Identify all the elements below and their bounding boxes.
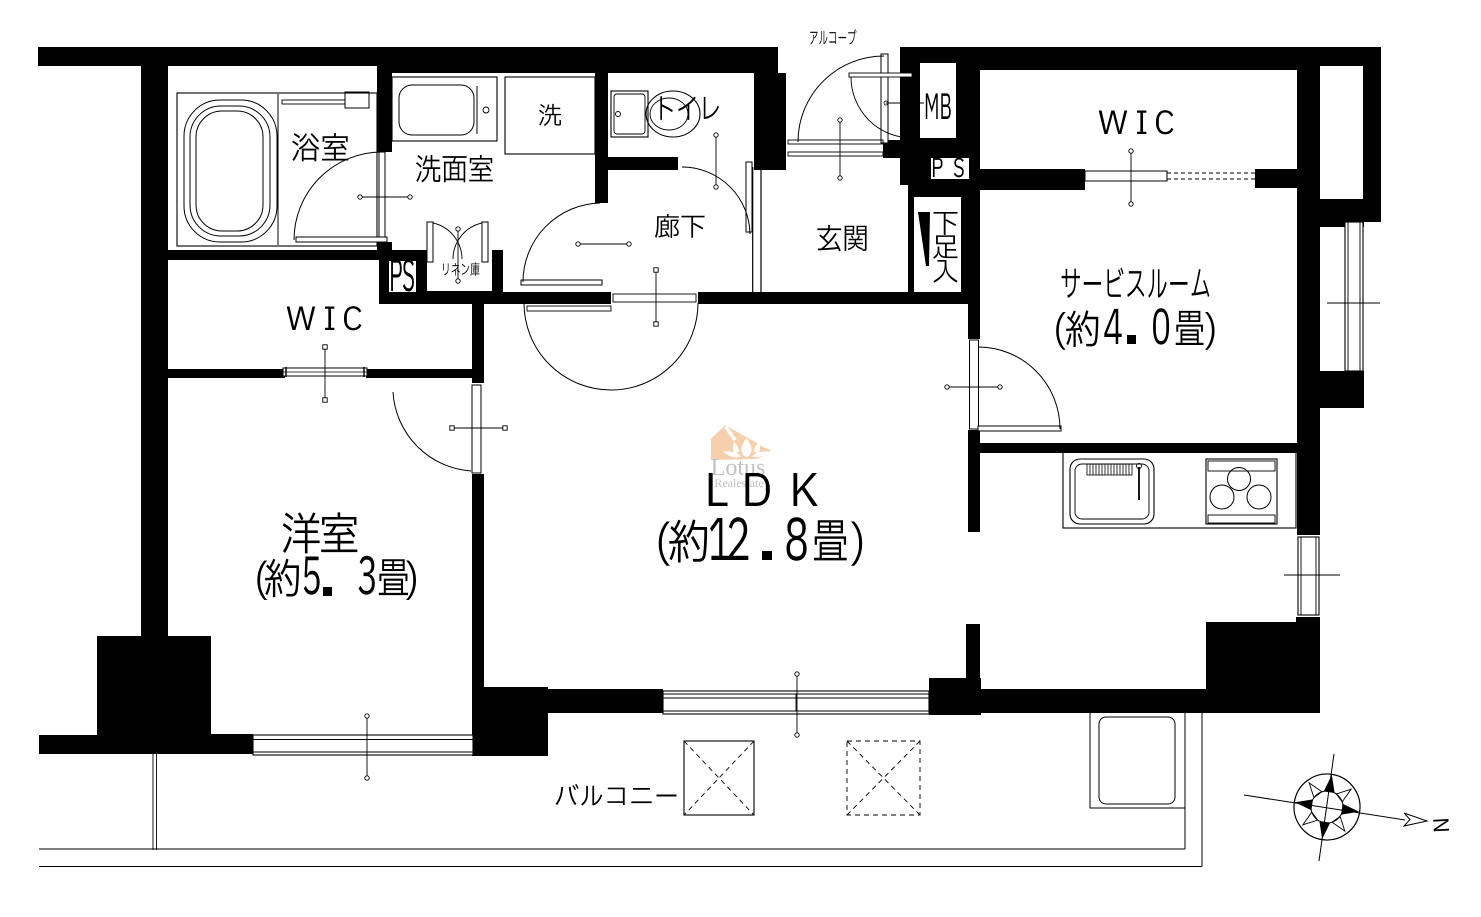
svg-text:Realestate: Realestate bbox=[714, 476, 763, 490]
